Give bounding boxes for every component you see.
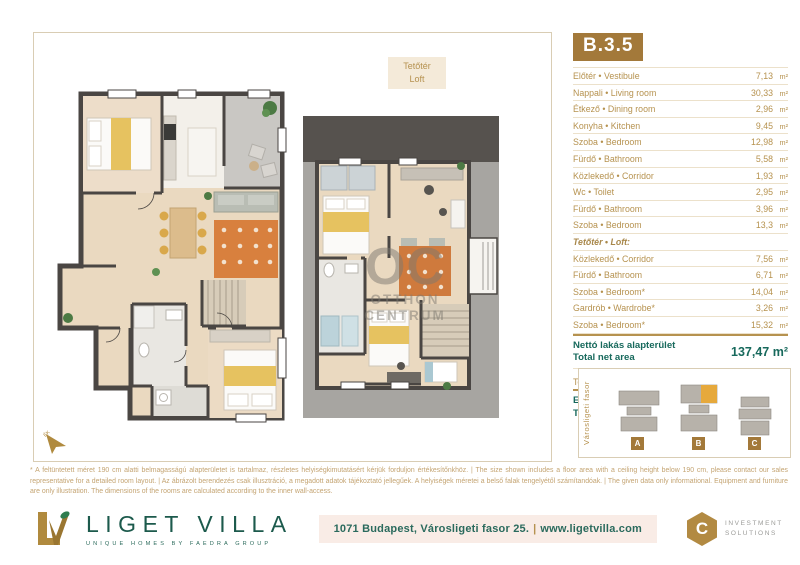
disclaimer-text: * A feltüntetett méret 190 cm alatti bel…: [30, 466, 788, 498]
brand-name: LIGET VILLA: [86, 511, 293, 538]
dining-table: [160, 208, 207, 258]
brand-block: LIGET VILLA UNIQUE HOMES BY FAEDRA GROUP: [86, 511, 293, 547]
street-label: Városligeti fasor: [582, 375, 591, 451]
table-row: Konyha • Kitchen9,45m²: [573, 118, 788, 135]
building-b: [677, 383, 721, 435]
investment-solutions-logo: C INVESTMENT SOLUTIONS: [687, 512, 783, 546]
footer: LIGET VILLA UNIQUE HOMES BY FAEDRA GROUP…: [0, 499, 800, 559]
plant: [443, 382, 451, 390]
table-row: Wc • Toilet2,95m²: [573, 184, 788, 201]
loft-stairs: [421, 304, 469, 358]
table-row: Nappali • Living room30,33m²: [573, 85, 788, 102]
north-arrow-icon: ÉK: [42, 428, 70, 456]
table-section-header: Tetőtér • Loft:: [573, 234, 788, 251]
loft-bed-3: [425, 362, 457, 382]
table-row: Étkező • Dining room2,96m²: [573, 101, 788, 118]
table-row: Szoba • Bedroom13,3m²: [573, 217, 788, 234]
net-area-label-en: Total net area: [573, 352, 675, 364]
siteplan-box: Városligeti fasor A B C: [578, 368, 791, 458]
building-label-a: A: [631, 437, 644, 450]
building-a: [617, 387, 661, 435]
loft-floor-plan: [301, 88, 503, 425]
loft-rug: [399, 238, 451, 296]
stairs: [202, 280, 246, 326]
living-area: [214, 192, 278, 278]
table-row: Szoba • Bedroom*15,32m²: [573, 317, 788, 334]
net-area-total: Nettó lakás alapterület Total net area 1…: [573, 334, 788, 370]
partner1-line1: INVESTMENT: [725, 519, 783, 529]
table-row: Közlekedő • Corridor1,93m²: [573, 168, 788, 185]
net-area-value: 137,47 m²: [731, 345, 788, 359]
address-text: 1071 Budapest, Városligeti fasor 25.: [334, 523, 530, 535]
building-label-b: B: [692, 437, 705, 450]
building-c: [737, 395, 773, 439]
net-area-label-hu: Nettó lakás alapterület: [573, 340, 675, 352]
table-row: Közlekedő • Corridor7,56m²: [573, 251, 788, 268]
plant: [63, 313, 73, 323]
table-row: Gardrób • Wardrobe*3,26m²: [573, 300, 788, 317]
table-row: Előtér • Vestibule7,13m²: [573, 68, 788, 85]
loft-plan-label: Tetőtér Loft: [388, 57, 446, 89]
liget-villa-logo-icon: [32, 508, 74, 550]
balcony: [469, 238, 497, 294]
table-row: Fürdő • Bathroom6,71m²: [573, 267, 788, 284]
investment-solutions-icon: C: [687, 512, 717, 546]
plant: [152, 268, 160, 276]
address-separator: |: [529, 523, 540, 535]
area-table-panel: B.3.5 Előtér • Vestibule7,13m²Nappali • …: [573, 33, 788, 424]
table-row: Szoba • Bedroom12,98m²: [573, 134, 788, 151]
table-row: Fürdő • Bathroom5,58m²: [573, 151, 788, 168]
partner1-line2: SOLUTIONS: [725, 529, 783, 539]
address-bar: 1071 Budapest, Városligeti fasor 25.|www…: [319, 515, 657, 543]
website-link[interactable]: www.ligetvilla.com: [540, 523, 642, 535]
table-row: Szoba • Bedroom*14,04m²: [573, 284, 788, 301]
unit-code-badge: B.3.5: [573, 33, 643, 61]
highlighted-unit: [701, 385, 717, 403]
ground-floor-plan: [56, 88, 288, 425]
area-rows: Előtér • Vestibule7,13m²Nappali • Living…: [573, 67, 788, 334]
bed-1: [87, 118, 151, 170]
plant: [204, 192, 212, 200]
brand-subtitle: UNIQUE HOMES BY FAEDRA GROUP: [86, 541, 293, 547]
table-row: Fürdő • Bathroom3,96m²: [573, 201, 788, 218]
building-label-c: C: [748, 437, 761, 450]
